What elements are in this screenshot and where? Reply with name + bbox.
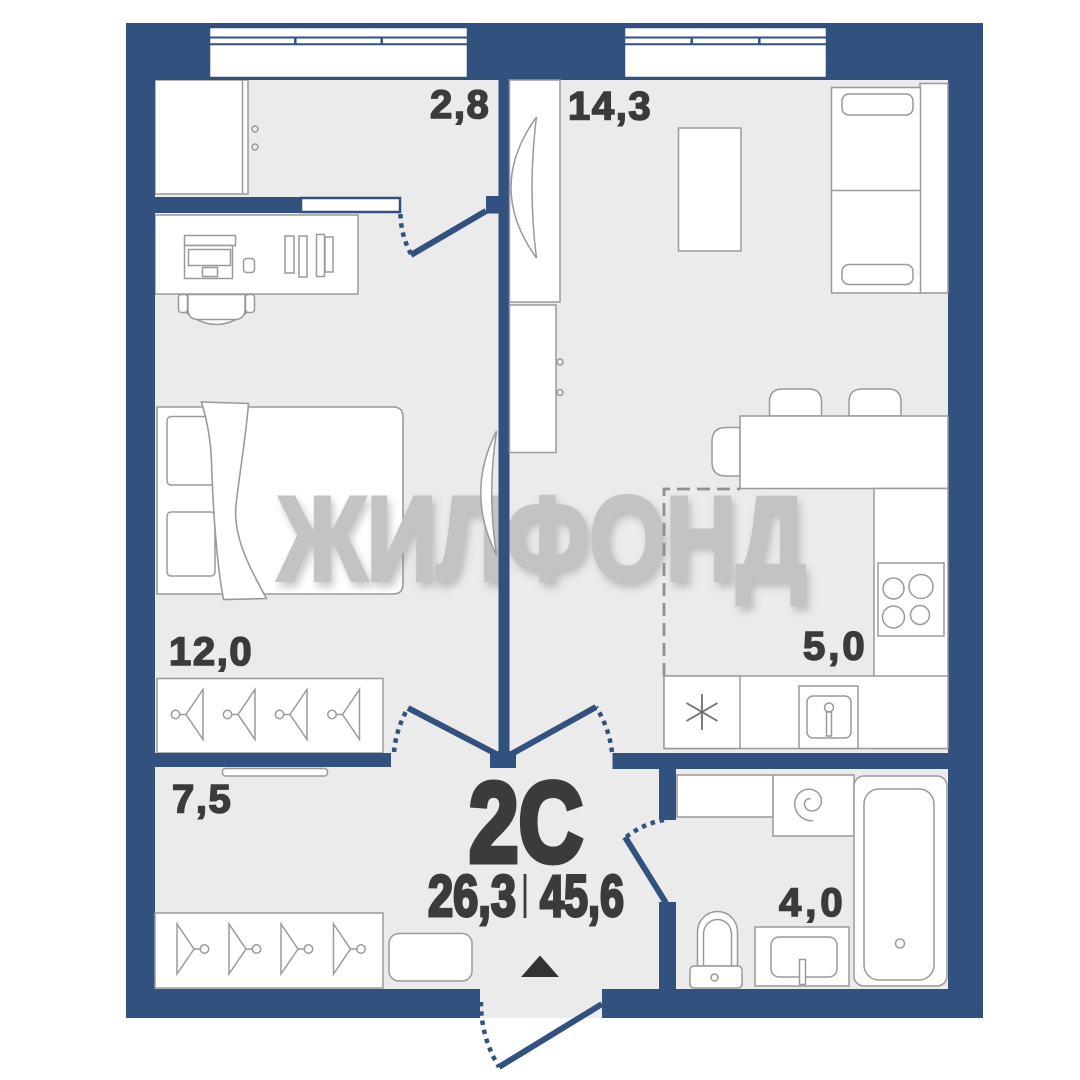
svg-text:26,3: 26,3 [428, 864, 516, 929]
svg-text:45,6: 45,6 [540, 864, 624, 929]
svg-text:12,0: 12,0 [169, 630, 253, 674]
svg-text:5,0: 5,0 [803, 625, 868, 669]
svg-text:4,0: 4,0 [779, 881, 847, 925]
svg-text:ЖИЛФОНД: ЖИЛФОНД [277, 472, 806, 606]
svg-text:7,5: 7,5 [172, 778, 232, 822]
svg-text:14,3: 14,3 [568, 85, 652, 129]
svg-text:2,8: 2,8 [430, 83, 490, 127]
